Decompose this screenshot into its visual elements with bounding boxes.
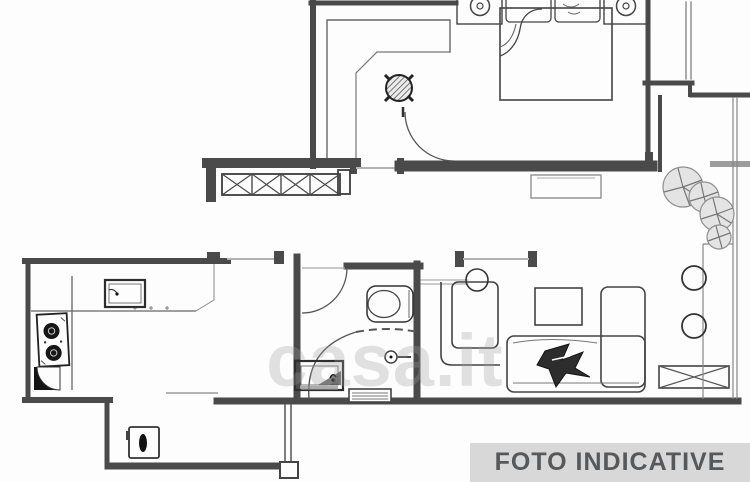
washing-machine-icon [126,427,159,458]
armchair-icon [441,282,500,365]
floor-lamp-icon [466,269,488,291]
toilet-icon [367,286,413,322]
washbasin-icon [295,361,343,390]
floorplan-image: casa.it FOTO INDICATIVE [0,0,750,482]
double-bed-icon [457,0,649,100]
coffee-table-icon [535,288,582,325]
bedroom-door-icon [403,107,454,161]
bathroom-window-icon [349,389,391,402]
stove-icon [37,313,70,366]
sofa-icon [507,287,645,392]
throw-blanket-icon [537,344,590,387]
ceiling-lamp-icon [385,75,413,101]
caption-label: FOTO INDICATIVE [495,448,726,477]
radiator-grille-icon [659,366,729,388]
kitchen-sink-icon [105,280,145,307]
caption-bar: FOTO INDICATIVE [470,443,750,482]
corner-unit-icon [34,367,60,390]
plants-icon [663,167,734,249]
hall-wardrobe-icon [222,170,350,195]
bathroom-door-icon [302,268,347,313]
window-sill-icon [531,175,601,198]
floorplan-drawing [0,0,750,482]
walls [25,2,750,478]
